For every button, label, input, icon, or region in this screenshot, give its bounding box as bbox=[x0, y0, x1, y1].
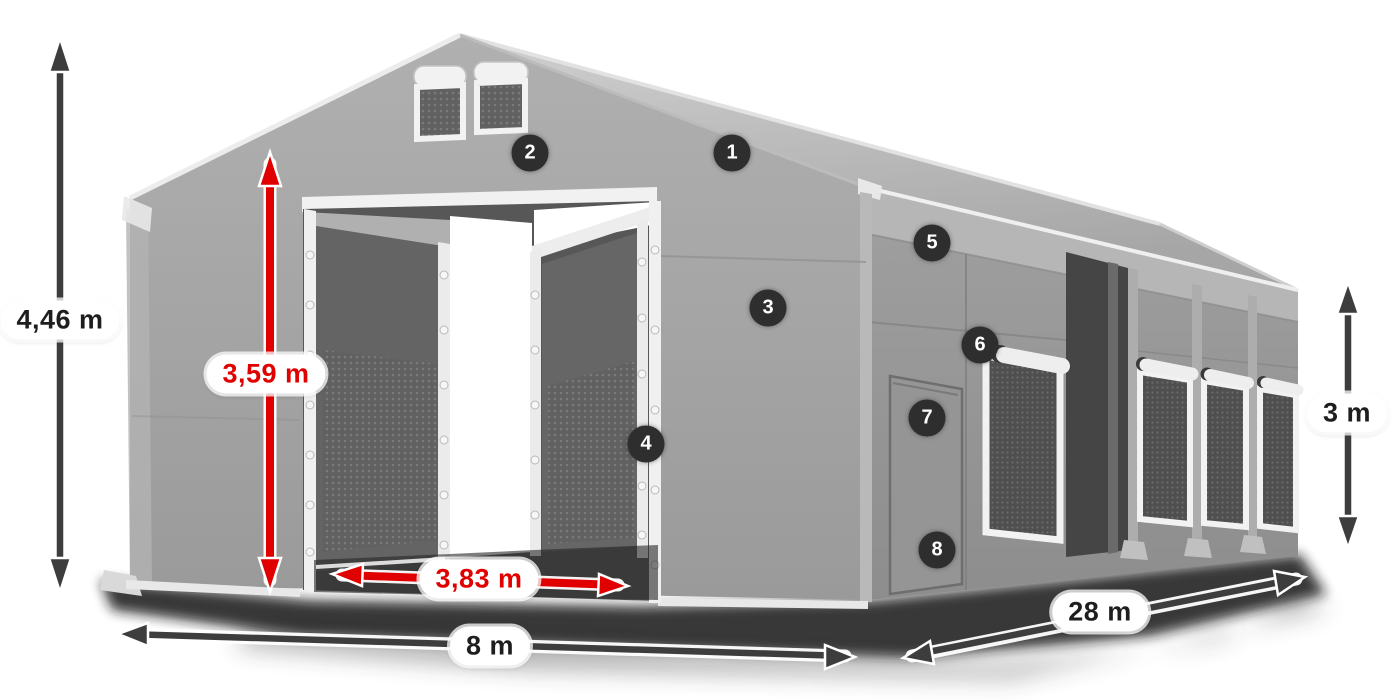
marker-4: 4 bbox=[628, 426, 665, 463]
window-roll-bar bbox=[1004, 355, 1062, 366]
entrance-pole-right bbox=[649, 201, 661, 603]
tent-dimension-diagram: 4,46 m 3,59 m 3,83 m 8 m 28 m 3 m 1 2 3 … bbox=[0, 0, 1400, 700]
marker-1: 1 bbox=[714, 135, 751, 172]
tent-illustration bbox=[0, 0, 1400, 700]
side-window-3 bbox=[1201, 368, 1249, 528]
dim-label-width: 8 m bbox=[450, 626, 530, 665]
entrance-opening bbox=[303, 201, 661, 603]
marker-2: 2 bbox=[512, 135, 549, 172]
dim-label-entrance-width: 3,83 m bbox=[419, 559, 538, 598]
gable-vent-1 bbox=[414, 66, 466, 139]
marker-6: 6 bbox=[962, 327, 999, 364]
dim-label-entrance-height: 3,59 m bbox=[206, 354, 325, 393]
front-right-corner bbox=[860, 192, 872, 602]
marker-3: 3 bbox=[750, 290, 787, 327]
side-window-1 bbox=[986, 345, 1062, 540]
gable-vent-2 bbox=[474, 62, 528, 132]
side-window-4 bbox=[1257, 376, 1298, 530]
dim-label-side-height: 3 m bbox=[1307, 393, 1387, 432]
dim-label-length: 28 m bbox=[1052, 592, 1148, 631]
marker-8: 8 bbox=[919, 532, 956, 569]
front-left-corner bbox=[126, 205, 152, 588]
marker-5: 5 bbox=[914, 225, 951, 262]
side-open-gap bbox=[1066, 252, 1128, 557]
entrance-door-left bbox=[316, 226, 450, 572]
marker-7: 7 bbox=[909, 400, 946, 437]
side-window-2 bbox=[1136, 357, 1192, 524]
dim-label-total-height: 4,46 m bbox=[0, 300, 119, 339]
see-through-gap bbox=[450, 216, 532, 558]
